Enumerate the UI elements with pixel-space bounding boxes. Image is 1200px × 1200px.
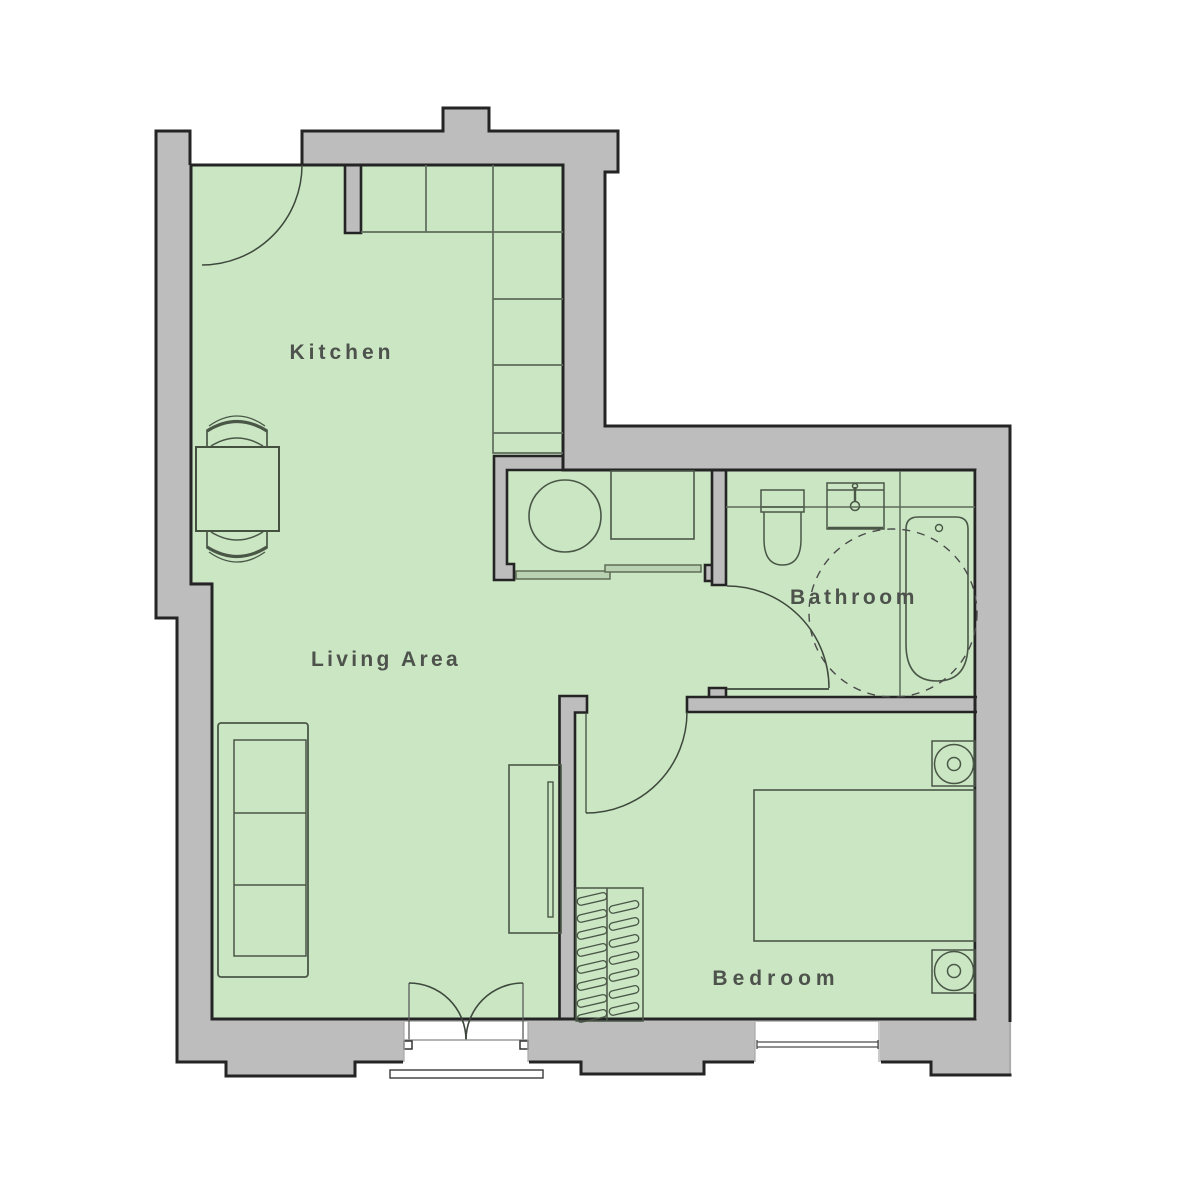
svg-text:Kitchen: Kitchen [289, 341, 394, 364]
svg-text:Bathroom: Bathroom [790, 586, 918, 609]
svg-text:Bedroom: Bedroom [712, 967, 839, 990]
svg-text:Living Area: Living Area [311, 648, 461, 671]
